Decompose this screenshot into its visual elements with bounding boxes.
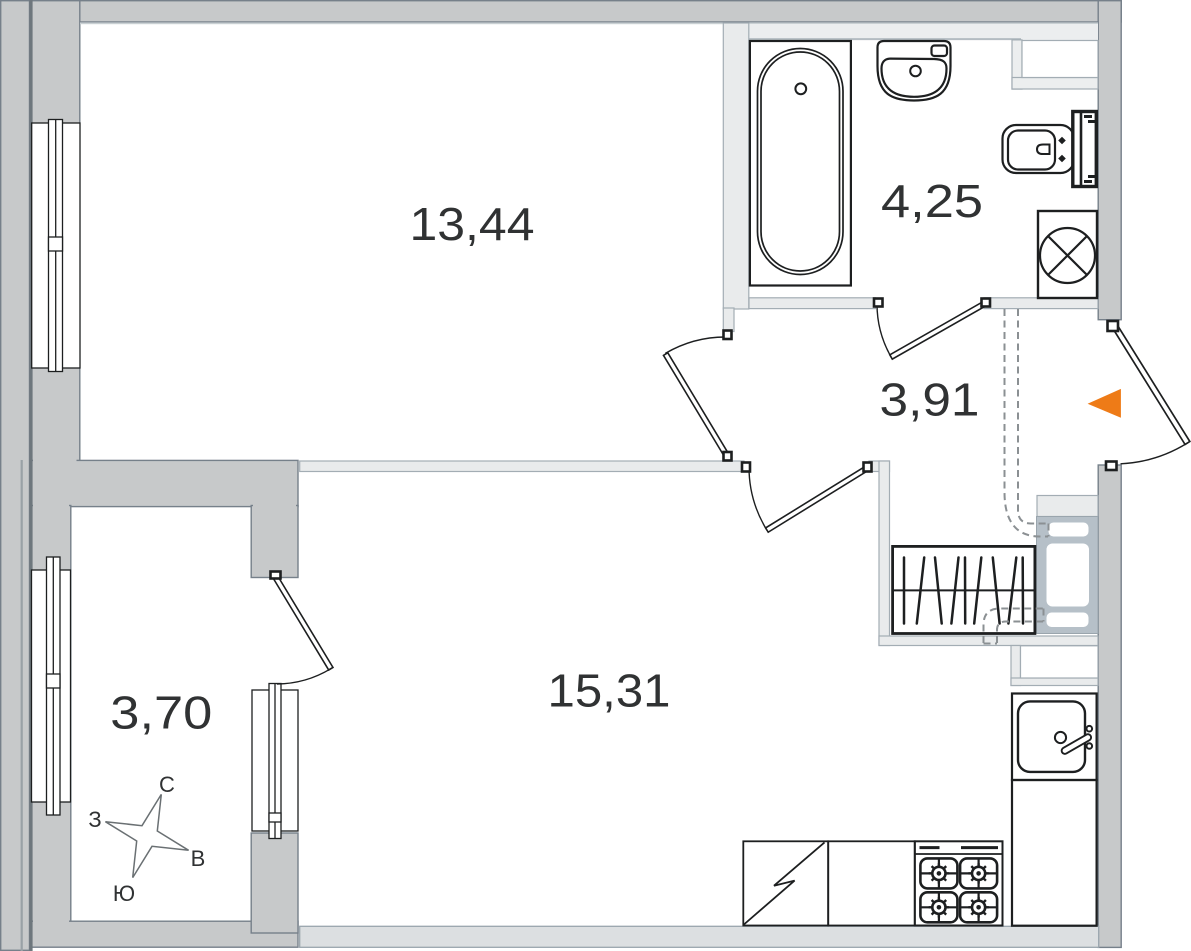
svg-text:13,44: 13,44 <box>410 198 535 250</box>
svg-text:З: З <box>88 807 101 832</box>
svg-text:4,25: 4,25 <box>881 175 983 227</box>
svg-text:3,91: 3,91 <box>880 374 980 426</box>
svg-text:15,31: 15,31 <box>548 665 671 717</box>
svg-text:В: В <box>191 846 206 871</box>
svg-text:С: С <box>159 772 175 797</box>
svg-text:3,70: 3,70 <box>110 687 212 739</box>
svg-text:Ю: Ю <box>113 881 135 906</box>
